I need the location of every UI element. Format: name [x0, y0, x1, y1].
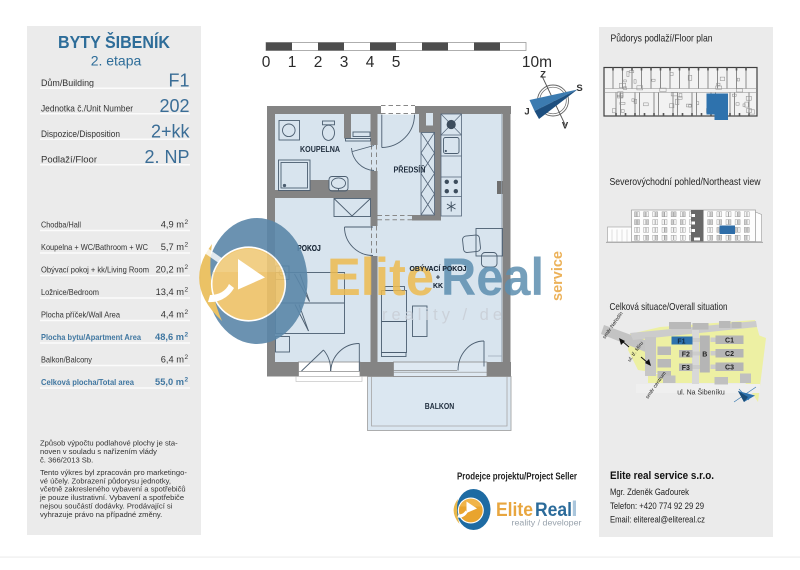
- svg-text:Půdorys podlaží/Floor plan: Půdorys podlaží/Floor plan: [611, 33, 713, 45]
- svg-text:C3: C3: [725, 365, 734, 372]
- svg-text:4,9 m: 4,9 m: [161, 220, 185, 230]
- svg-text:Jednotka č./Unit Number: Jednotka č./Unit Number: [41, 104, 133, 114]
- svg-text:13,4 m: 13,4 m: [156, 287, 185, 297]
- svg-text:Mgr. Zdeněk Gaďourek: Mgr. Zdeněk Gaďourek: [610, 487, 689, 498]
- svg-text:Z: Z: [540, 70, 546, 81]
- svg-text:0: 0: [262, 54, 271, 71]
- svg-text:2: 2: [185, 332, 189, 339]
- svg-text:10m: 10m: [522, 54, 552, 71]
- svg-text:BYTY ŠIBENÍK: BYTY ŠIBENÍK: [58, 31, 170, 52]
- svg-text:4: 4: [366, 54, 375, 71]
- svg-text:2: 2: [185, 219, 189, 226]
- svg-text:2: 2: [185, 309, 189, 316]
- svg-text:Prodejce projektu/Project Sell: Prodejce projektu/Project Seller: [457, 471, 577, 483]
- svg-text:F1: F1: [168, 71, 189, 91]
- svg-text:48,6 m: 48,6 m: [155, 332, 184, 342]
- svg-text:Real: Real: [441, 248, 544, 307]
- svg-text:F1: F1: [677, 338, 685, 345]
- svg-text:5,7 m: 5,7 m: [161, 242, 185, 252]
- svg-text:Koupelna + WC/Bathroom + WC: Koupelna + WC/Bathroom + WC: [41, 242, 148, 252]
- svg-text:Severovýchodní pohled/Northeas: Severovýchodní pohled/Northeast view: [610, 176, 761, 188]
- svg-text:S: S: [576, 83, 582, 94]
- svg-text:C1: C1: [725, 338, 734, 345]
- svg-text:202: 202: [159, 96, 189, 116]
- svg-text:4,4 m: 4,4 m: [161, 310, 185, 320]
- svg-text:J: J: [524, 107, 529, 118]
- svg-text:Elite real service s.r.o.: Elite real service s.r.o.: [610, 470, 714, 482]
- svg-text:Plocha příček/Wall Area: Plocha příček/Wall Area: [41, 310, 120, 320]
- svg-text:service: service: [550, 251, 566, 301]
- svg-text:PŘEDSÍŇ: PŘEDSÍŇ: [394, 165, 426, 174]
- svg-text:2: 2: [185, 242, 189, 249]
- svg-text:2. etapa: 2. etapa: [91, 53, 142, 69]
- svg-text:Telefon: +420 774 92 29 29: Telefon: +420 774 92 29 29: [610, 501, 704, 512]
- svg-text:Ložnice/Bedroom: Ložnice/Bedroom: [41, 287, 99, 297]
- svg-text:V: V: [562, 121, 569, 132]
- svg-text:Celková situace/Overall situat: Celková situace/Overall situation: [610, 301, 728, 313]
- svg-text:Celková plocha/Total area: Celková plocha/Total area: [41, 377, 134, 387]
- svg-text:č. 366/2013 Sb.: č. 366/2013 Sb.: [40, 455, 93, 464]
- svg-text:KOUPELNA: KOUPELNA: [300, 145, 340, 154]
- svg-text:Obývací pokoj + kk/Living Room: Obývací pokoj + kk/Living Room: [41, 265, 149, 275]
- svg-text:vyhrazuje právo na případné zm: vyhrazuje právo na případné změny.: [40, 510, 162, 519]
- svg-text:55,0 m: 55,0 m: [155, 377, 184, 387]
- svg-text:3: 3: [340, 54, 349, 71]
- svg-text:BALKON: BALKON: [425, 402, 455, 411]
- svg-text:F3: F3: [682, 365, 690, 372]
- svg-text:F2: F2: [682, 352, 690, 359]
- svg-text:Dům/Building: Dům/Building: [41, 78, 94, 88]
- svg-text:ul. Na Šibeníku: ul. Na Šibeníku: [677, 388, 725, 397]
- svg-text:Balkon/Balcony: Balkon/Balcony: [41, 355, 93, 365]
- svg-text:2: 2: [185, 287, 189, 294]
- svg-text:reality / developer: reality / developer: [512, 519, 582, 528]
- svg-text:5: 5: [392, 54, 401, 71]
- svg-text:2: 2: [314, 54, 323, 71]
- svg-text:Email: elitereal@elitereal.cz: Email: elitereal@elitereal.cz: [610, 515, 705, 526]
- svg-text:Plocha bytu/Apartment Area: Plocha bytu/Apartment Area: [41, 332, 141, 342]
- svg-text:KK: KK: [433, 281, 444, 290]
- svg-text:2+kk: 2+kk: [151, 122, 191, 142]
- svg-text:B: B: [702, 352, 707, 359]
- svg-text:2: 2: [185, 377, 189, 384]
- svg-text:Elite: Elite: [327, 248, 434, 307]
- svg-text:2: 2: [185, 354, 189, 361]
- svg-text:reality / de: reality / de: [382, 306, 506, 324]
- svg-text:20,2 m: 20,2 m: [156, 265, 185, 275]
- svg-text:6,4 m: 6,4 m: [161, 355, 185, 365]
- svg-text:Podlaží/Floor: Podlaží/Floor: [41, 155, 97, 165]
- svg-text:Chodba/Hall: Chodba/Hall: [41, 220, 81, 230]
- svg-text:Dispozice/Disposition: Dispozice/Disposition: [41, 129, 120, 139]
- svg-text:1: 1: [288, 54, 297, 71]
- svg-text:2: 2: [185, 264, 189, 271]
- svg-text:C2: C2: [725, 351, 734, 358]
